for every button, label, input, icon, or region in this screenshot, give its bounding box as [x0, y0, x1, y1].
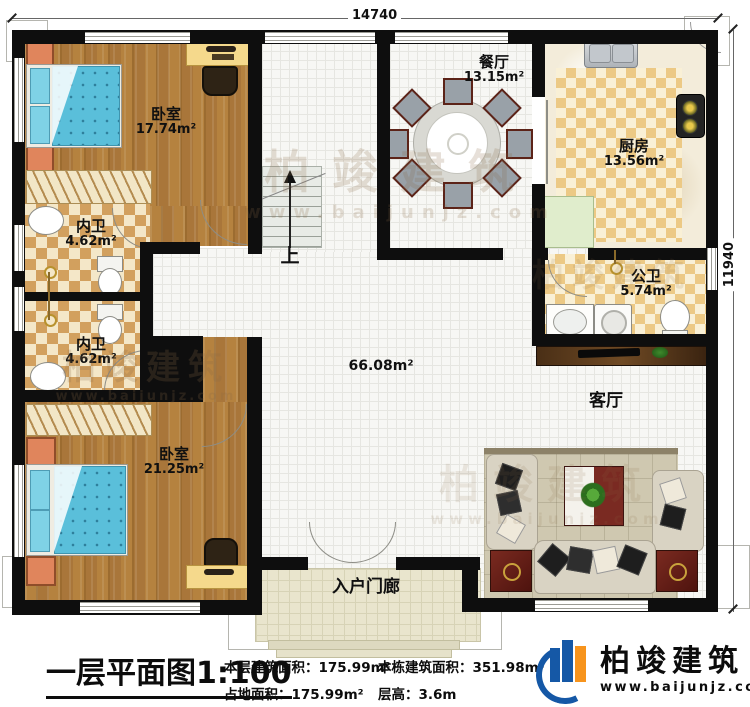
bed-pillow: [30, 470, 50, 510]
spec-total-area: 本栋建筑面积：351.98m²: [378, 656, 545, 676]
brand-url: www.baijunjz.com: [600, 680, 750, 695]
spec-story-height: 层高：3.6m: [378, 683, 545, 703]
dresser-items: [206, 46, 236, 52]
room-area: 13.56m²: [588, 155, 680, 170]
porch-label: 入户门廊: [306, 578, 426, 598]
room-label-bath2: 内卫 4.62m²: [48, 336, 134, 368]
wall: [532, 254, 545, 346]
wall: [706, 30, 718, 612]
room-label-dining: 餐厅 13.15m²: [448, 54, 540, 86]
hall-area-label: 66.08m²: [336, 358, 426, 374]
logo-building-bar: [550, 648, 560, 682]
room-name: 公卫: [600, 268, 692, 285]
brand-name: 柏竣建筑: [600, 636, 750, 680]
stove-burner: [682, 118, 698, 134]
wall: [247, 337, 262, 615]
wall: [532, 334, 706, 346]
window: [14, 225, 24, 271]
stove-burner: [682, 100, 698, 116]
room-area: 5.74m²: [600, 285, 692, 300]
side-table: [490, 550, 532, 592]
bed-pillow: [30, 510, 50, 552]
washer-door: [601, 310, 627, 336]
vanity-basin: [553, 309, 587, 335]
window: [707, 248, 717, 290]
wall: [377, 30, 390, 260]
brand-logo: 柏竣建筑 www.baijunjz.com: [536, 636, 750, 695]
room-name: 卧室: [128, 446, 220, 463]
wall: [25, 292, 150, 301]
toilet-bowl: [660, 300, 690, 334]
stair-arrow-line: [289, 182, 291, 248]
nightstand: [26, 437, 56, 467]
wardrobe: [26, 170, 152, 204]
bedroom2-entry-floor: [203, 337, 247, 402]
room-name: 卧室: [120, 106, 212, 123]
sofa-pillow: [592, 546, 620, 574]
wall: [462, 557, 478, 612]
spec-column-1: 本层建筑面积：175.99m² 占地面积：175.99m²: [224, 656, 391, 707]
logo-building-bar: [562, 640, 573, 682]
room-name: 餐厅: [448, 54, 540, 71]
chair: [204, 538, 238, 568]
towel-rail: [614, 250, 616, 264]
bed-sheet-fold: [54, 466, 82, 552]
bed-pillow: [30, 68, 50, 104]
room-label-living: 客厅: [568, 392, 644, 412]
sofa-pillow: [566, 546, 594, 574]
wardrobe: [26, 404, 152, 436]
kitchen-sink-basin: [589, 44, 611, 63]
cabinet-plant: [652, 347, 668, 358]
dresser-items: [212, 54, 234, 60]
room-label-bedroom1: 卧室 17.74m²: [120, 106, 212, 138]
towel-rail: [48, 272, 50, 320]
window: [14, 465, 24, 557]
window: [14, 58, 24, 142]
wall: [248, 30, 262, 254]
wall: [588, 248, 718, 260]
wall: [255, 557, 308, 570]
kitchen-sink-basin: [612, 44, 634, 63]
room-area: 17.74m²: [120, 123, 212, 138]
brand-text-block: 柏竣建筑 www.baijunjz.com: [600, 636, 750, 695]
spec-column-2: 本栋建筑面积：351.98m² 层高：3.6m: [378, 656, 545, 707]
kitchen-door-leaf: [546, 100, 548, 184]
dining-table-center: [447, 133, 469, 155]
dining-chair: [506, 129, 533, 159]
side-table: [656, 550, 698, 592]
room-label-bedroom2: 卧室 21.25m²: [128, 446, 220, 478]
room-area: 4.62m²: [48, 353, 134, 368]
room-name: 内卫: [48, 218, 134, 235]
room-label-bath1: 内卫 4.62m²: [48, 218, 134, 250]
wall: [140, 336, 203, 402]
dim-height: 11940: [722, 238, 737, 291]
window: [535, 600, 648, 611]
bed-pillow: [30, 106, 50, 144]
sofa-pillow: [496, 490, 522, 516]
window: [14, 287, 24, 331]
exterior-step: [714, 545, 750, 609]
logo-building-bar: [575, 646, 586, 682]
spec-footprint-area: 占地面积：175.99m²: [224, 683, 391, 703]
room-label-gongwei: 公卫 5.74m²: [600, 268, 692, 300]
stair-arrow-head: [284, 170, 296, 183]
spec-floor-area: 本层建筑面积：175.99m²: [224, 656, 391, 676]
dim-width: 14740: [348, 8, 401, 23]
dining-chair: [443, 182, 473, 209]
room-area: 13.15m²: [448, 71, 540, 86]
room-name: 内卫: [48, 336, 134, 353]
room-name: 厨房: [588, 138, 680, 155]
room-area: 21.25m²: [128, 463, 220, 478]
room-label-kitchen: 厨房 13.56m²: [588, 138, 680, 170]
window: [265, 32, 375, 43]
wall: [377, 248, 503, 260]
bed-sheet-fold: [52, 66, 78, 144]
dresser-items: [204, 569, 234, 575]
floor-plan-canvas: 14740 11940: [0, 0, 750, 707]
window: [85, 32, 190, 43]
fridge: [544, 196, 594, 248]
stairs-up-label: 上: [272, 246, 308, 268]
nightstand: [26, 556, 56, 586]
brand-logo-icon: [536, 638, 590, 694]
room-area: 4.62m²: [48, 235, 134, 250]
window: [80, 602, 200, 613]
towel-hook: [44, 266, 57, 279]
window: [395, 32, 508, 43]
chair: [202, 66, 238, 96]
dim-line-right: [733, 30, 734, 612]
towel-hook: [44, 314, 57, 327]
table-plant: [578, 480, 608, 510]
